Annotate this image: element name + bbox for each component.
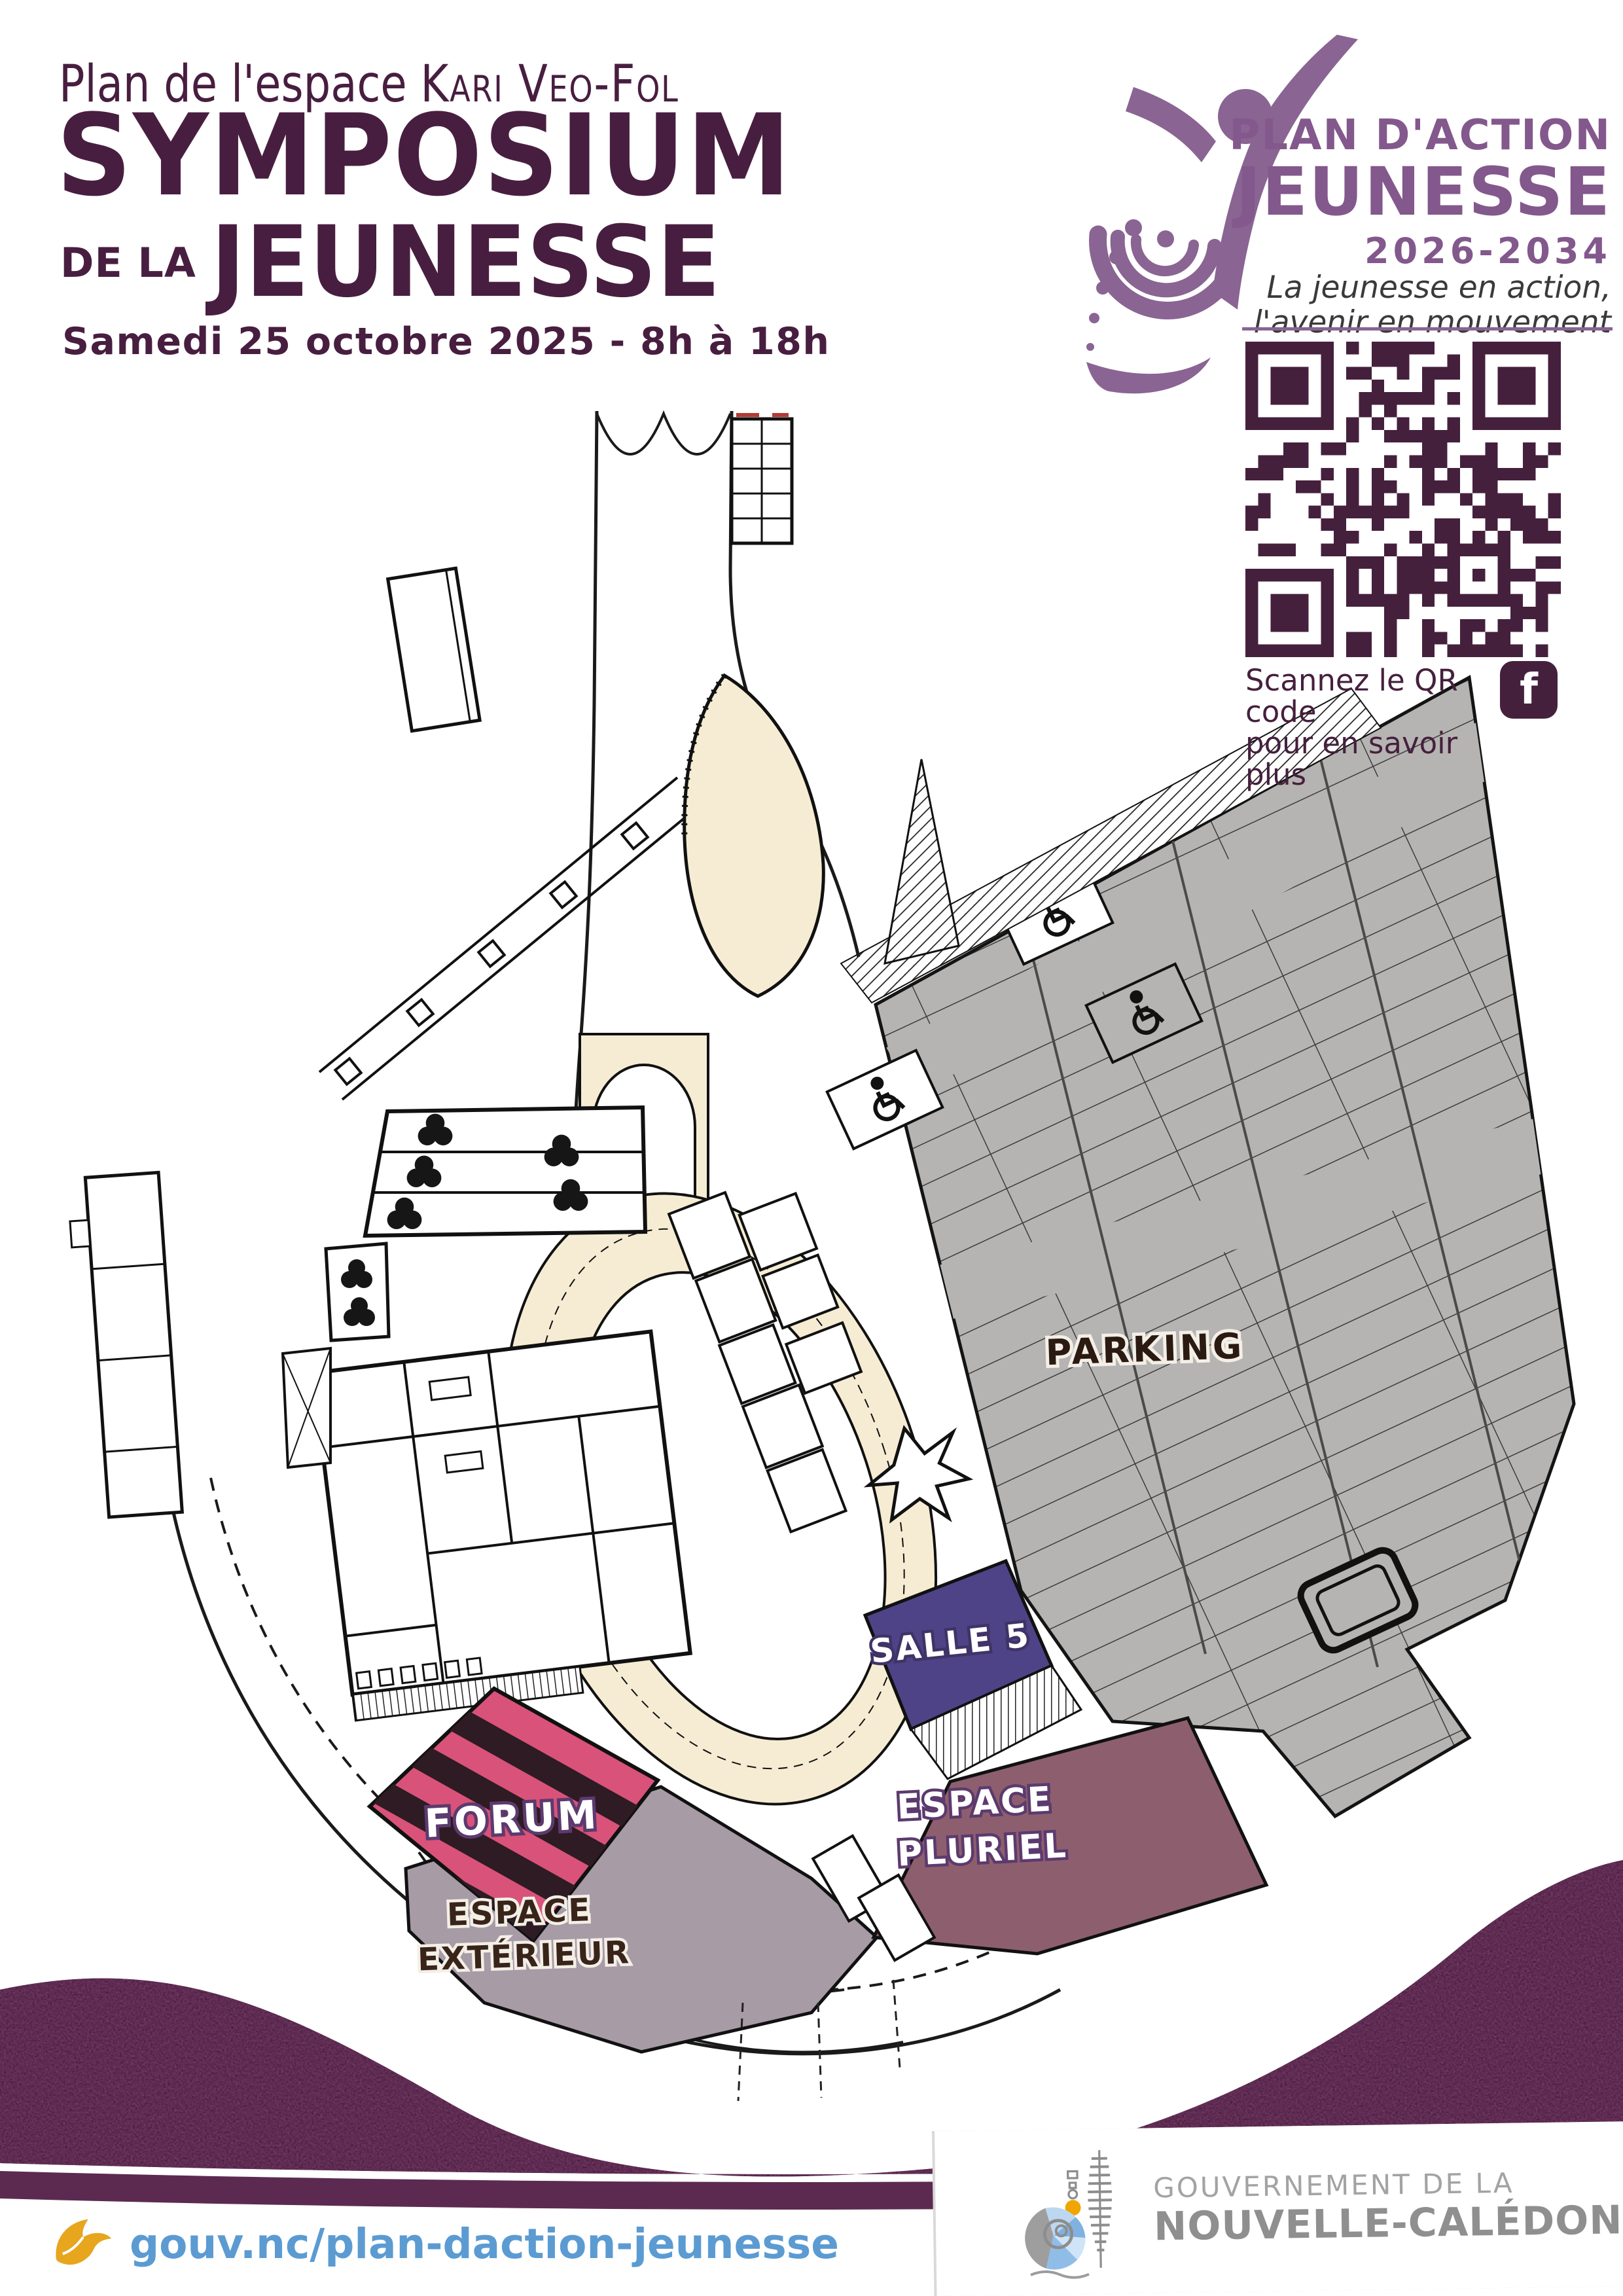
svg-text:ESPACE: ESPACE (446, 1892, 592, 1933)
west-strip-building (67, 1172, 182, 1518)
title-row: DE LA JEUNESSE (60, 216, 747, 310)
facebook-letter: f (1520, 666, 1538, 714)
nc-government-logo (1013, 2137, 1130, 2286)
poster-page: PARKING SALLE 5 FORUM ESPACE PLURIEL ESP… (0, 0, 1623, 2296)
qr-caption-line2: pour en savoir plus (1245, 726, 1457, 792)
logo-years: 2026-2034 (1171, 230, 1611, 272)
logo-divider (1242, 327, 1613, 331)
totem-icon (1068, 2171, 1077, 2178)
title-jeunesse: JEUNESSE (211, 216, 721, 310)
planted-bed (365, 1107, 645, 1236)
entrance-building (732, 415, 792, 543)
qr-caption-line1: Scannez le QR code (1245, 663, 1458, 729)
wave-underline (1031, 2270, 1089, 2278)
label-forum: FORUM (423, 1792, 600, 1847)
label-parking: PARKING (1045, 1325, 1245, 1374)
planted-bed-small (326, 1244, 389, 1340)
footer-url: gouv.nc/plan-daction-jeunesse (130, 2220, 839, 2268)
event-date: Samedi 25 octobre 2025 - 8h à 18h (62, 320, 830, 363)
svg-text:EXTÉRIEUR: EXTÉRIEUR (417, 1933, 632, 1978)
qr-code (1245, 342, 1561, 657)
tagline-line2: l'avenir en mouvement (1254, 304, 1611, 340)
qr-caption: Scannez le QR code pour en savoir plus (1245, 665, 1494, 791)
title-de-la: DE LA (60, 239, 196, 287)
nautilus-shell-icon (1024, 2206, 1086, 2269)
annex-building (388, 568, 480, 731)
tagline-line1: La jeunesse en action, (1267, 270, 1611, 306)
facebook-icon: f (1500, 661, 1558, 719)
cagou-bird-icon (51, 2212, 115, 2274)
title-symposium: SYMPOSIUM (56, 99, 792, 212)
government-card: GOUVERNEMENT DE LA NOUVELLE-CALÉDONIE (935, 2121, 1623, 2296)
logo-jeunesse: JEUNESSE (1171, 157, 1611, 227)
gov-line2: NOUVELLE-CALÉDONIE (1154, 2197, 1623, 2250)
logo-plan-daction: PLAN D'ACTION (1171, 111, 1611, 160)
svg-text:ESPACE: ESPACE (896, 1780, 1054, 1827)
